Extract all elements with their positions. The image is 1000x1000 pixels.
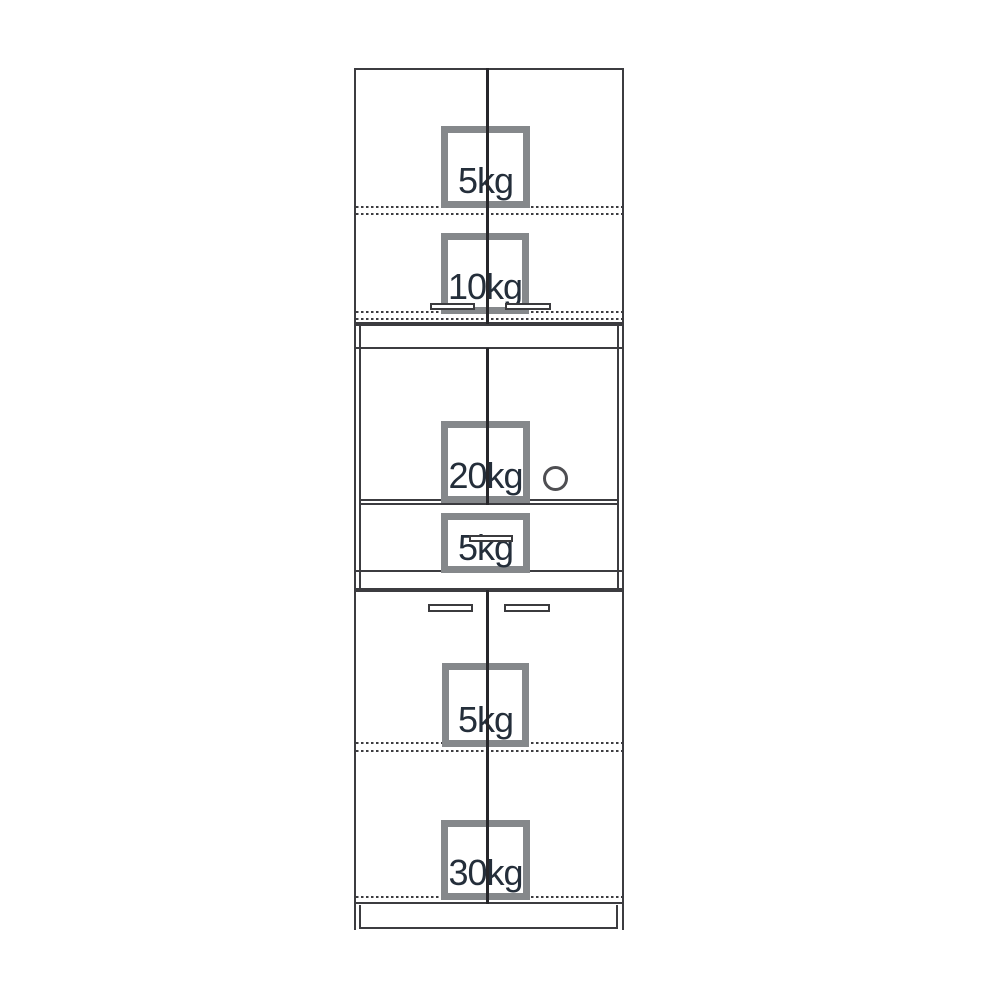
weight-badge-label: 10kg	[448, 269, 522, 307]
middle-unit-inner-left-wall	[359, 325, 361, 589]
weight-badge: 5kg	[441, 513, 530, 573]
door-handle	[428, 604, 473, 612]
cabinet-diagram: 5kg 10kg 20kg 5kg 5kg 30kg	[0, 0, 1000, 1000]
plinth-outer-left-line	[354, 904, 356, 930]
plinth-outer-right-line	[622, 904, 624, 930]
weight-badge: 10kg	[441, 233, 529, 314]
plinth-bottom-line	[359, 927, 618, 929]
door-handle	[504, 604, 550, 612]
drawer-handle	[469, 535, 513, 542]
top-shelf-dashed-line	[356, 213, 622, 215]
bottom-shelf-dashed-line	[356, 750, 622, 752]
top-cabinet-door-gap-line	[486, 68, 489, 324]
plinth-inner-right-line	[616, 905, 618, 929]
door-handle	[430, 303, 475, 310]
open-compartment-center-line	[486, 348, 489, 505]
plinth-inner-left-line	[359, 905, 361, 929]
bottom-cabinet-door-gap-line	[486, 590, 489, 904]
top-bottom-dashed-line	[356, 318, 622, 320]
compartment-floor-line	[360, 503, 618, 505]
door-handle	[505, 303, 551, 310]
middle-unit-top-rail-line	[355, 347, 623, 349]
knob-circle-icon	[543, 466, 568, 491]
middle-unit-inner-right-wall	[617, 325, 619, 589]
